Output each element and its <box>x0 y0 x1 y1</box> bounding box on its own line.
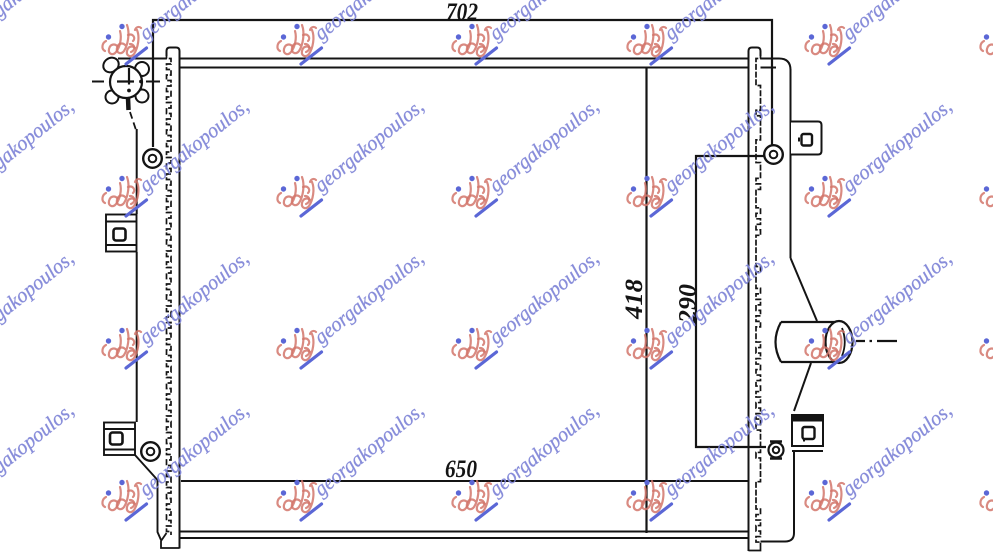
svg-text:650: 650 <box>445 456 477 483</box>
svg-text:702: 702 <box>446 0 478 26</box>
svg-text:418: 418 <box>621 278 648 320</box>
